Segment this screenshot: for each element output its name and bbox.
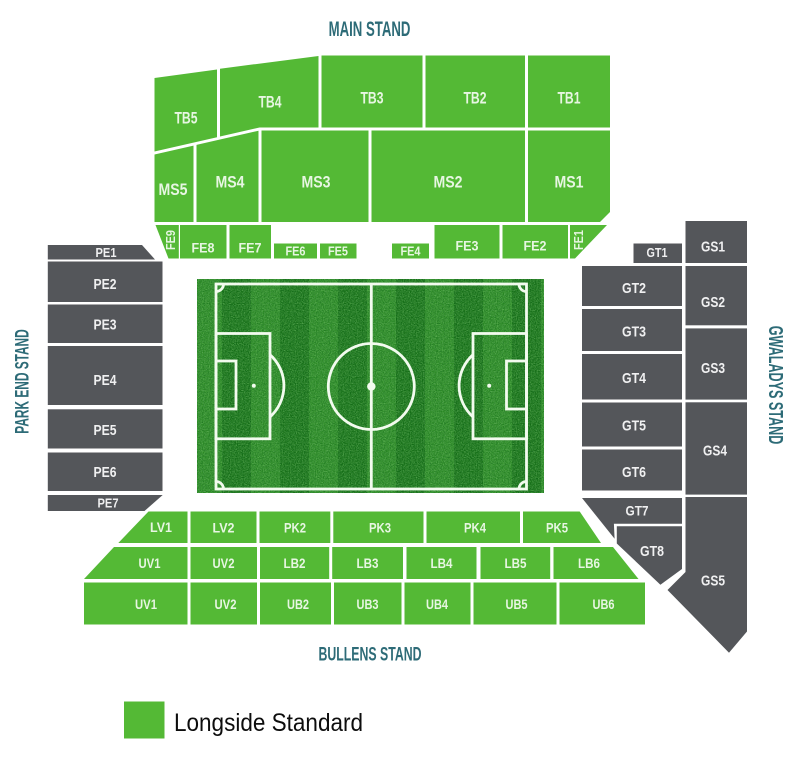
svg-text:TB4: TB4 bbox=[259, 93, 282, 112]
svg-text:FE7: FE7 bbox=[239, 240, 262, 256]
svg-text:UB3: UB3 bbox=[357, 596, 379, 612]
svg-text:UB6: UB6 bbox=[593, 596, 615, 612]
svg-text:PE4: PE4 bbox=[94, 372, 118, 389]
svg-text:GT2: GT2 bbox=[622, 280, 646, 297]
svg-text:PE2: PE2 bbox=[94, 276, 117, 293]
svg-text:Longside Standard: Longside Standard bbox=[174, 709, 363, 737]
svg-text:UB2: UB2 bbox=[287, 596, 309, 612]
svg-text:PK5: PK5 bbox=[546, 520, 568, 536]
svg-text:LB3: LB3 bbox=[357, 555, 379, 571]
svg-text:GS2: GS2 bbox=[701, 294, 725, 311]
svg-text:FE1: FE1 bbox=[572, 230, 586, 250]
svg-text:FE2: FE2 bbox=[524, 238, 547, 254]
svg-text:UV2: UV2 bbox=[213, 555, 235, 571]
svg-text:BULLENS STAND: BULLENS STAND bbox=[319, 643, 422, 665]
svg-text:LB6: LB6 bbox=[578, 555, 600, 571]
svg-text:GT1: GT1 bbox=[647, 245, 668, 260]
svg-text:UV1: UV1 bbox=[139, 555, 161, 571]
svg-text:UB4: UB4 bbox=[426, 596, 448, 612]
svg-text:MS4: MS4 bbox=[216, 173, 245, 192]
svg-text:GT8: GT8 bbox=[640, 543, 664, 560]
svg-text:FE5: FE5 bbox=[328, 245, 348, 259]
svg-text:MS2: MS2 bbox=[434, 173, 463, 192]
svg-text:TB5: TB5 bbox=[175, 109, 198, 128]
svg-text:GT6: GT6 bbox=[622, 464, 646, 481]
svg-text:FE8: FE8 bbox=[192, 240, 215, 256]
svg-text:GWALADYS STAND: GWALADYS STAND bbox=[764, 326, 786, 445]
svg-text:TB1: TB1 bbox=[558, 89, 581, 108]
svg-text:PK3: PK3 bbox=[369, 520, 391, 536]
svg-text:FE3: FE3 bbox=[456, 238, 479, 254]
svg-text:PE1: PE1 bbox=[96, 245, 117, 260]
svg-text:PE3: PE3 bbox=[94, 316, 117, 333]
svg-text:PK2: PK2 bbox=[284, 520, 306, 536]
svg-text:MS1: MS1 bbox=[555, 173, 584, 192]
svg-text:GS5: GS5 bbox=[701, 572, 725, 589]
svg-text:MAIN STAND: MAIN STAND bbox=[329, 18, 411, 41]
svg-text:PE6: PE6 bbox=[94, 464, 117, 481]
svg-text:GT4: GT4 bbox=[622, 370, 647, 387]
svg-text:PK4: PK4 bbox=[464, 520, 486, 536]
svg-text:GT5: GT5 bbox=[622, 417, 646, 434]
svg-text:PE5: PE5 bbox=[94, 422, 117, 439]
svg-text:FE9: FE9 bbox=[164, 230, 178, 250]
svg-text:GT3: GT3 bbox=[622, 323, 646, 340]
svg-text:GS3: GS3 bbox=[701, 360, 725, 377]
svg-text:FE4: FE4 bbox=[401, 245, 421, 259]
svg-text:LV2: LV2 bbox=[213, 520, 235, 536]
svg-text:TB3: TB3 bbox=[361, 89, 384, 108]
svg-text:PARK END STAND: PARK END STAND bbox=[12, 329, 33, 433]
svg-text:UV1: UV1 bbox=[135, 596, 157, 612]
svg-text:MS3: MS3 bbox=[302, 173, 331, 192]
svg-text:TB2: TB2 bbox=[464, 89, 487, 108]
svg-text:GS1: GS1 bbox=[701, 238, 725, 255]
svg-text:LB4: LB4 bbox=[431, 555, 453, 571]
svg-text:LV1: LV1 bbox=[150, 519, 172, 535]
svg-text:LB5: LB5 bbox=[505, 555, 527, 571]
svg-text:UB5: UB5 bbox=[506, 596, 528, 612]
svg-text:LB2: LB2 bbox=[284, 555, 306, 571]
svg-text:GT7: GT7 bbox=[626, 503, 649, 519]
svg-text:GS4: GS4 bbox=[703, 442, 728, 459]
svg-text:PE7: PE7 bbox=[98, 495, 119, 510]
svg-text:UV2: UV2 bbox=[215, 596, 237, 612]
svg-text:FE6: FE6 bbox=[286, 245, 306, 259]
svg-text:MS5: MS5 bbox=[159, 180, 188, 199]
